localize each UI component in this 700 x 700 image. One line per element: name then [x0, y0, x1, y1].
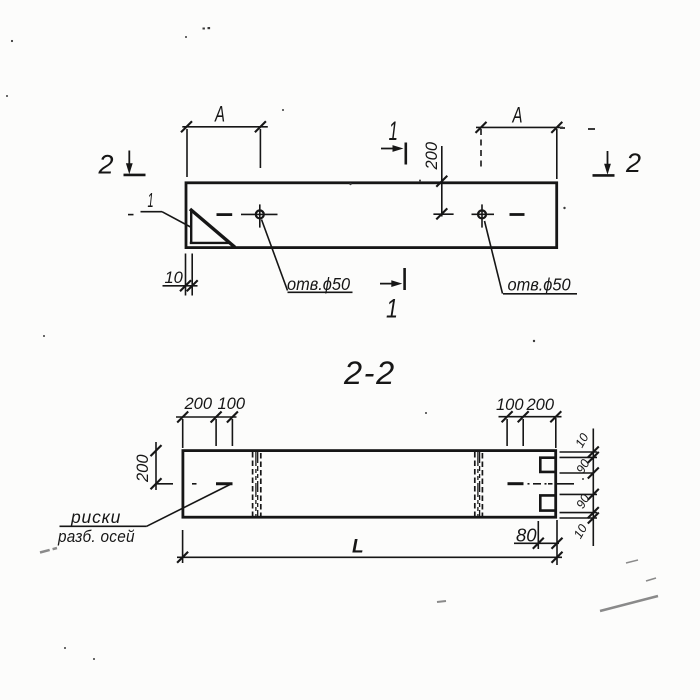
- svg-text:риски: риски: [70, 507, 121, 527]
- svg-text:10: 10: [571, 522, 590, 541]
- svg-text:100: 100: [496, 396, 524, 414]
- svg-text:1: 1: [386, 294, 398, 324]
- svg-text:2: 2: [625, 148, 641, 178]
- svg-text:200: 200: [526, 396, 555, 414]
- svg-text:1: 1: [148, 190, 154, 212]
- svg-text:200: 200: [134, 454, 152, 483]
- svg-text:отв.ϕ50: отв.ϕ50: [287, 273, 351, 294]
- svg-text:80: 80: [516, 525, 537, 546]
- svg-text:1: 1: [389, 116, 398, 146]
- svg-text:отв.ϕ50: отв.ϕ50: [508, 274, 572, 295]
- svg-text:A: A: [512, 103, 523, 128]
- svg-text:200: 200: [184, 395, 213, 413]
- svg-text:200: 200: [423, 141, 441, 170]
- svg-text:разб. осей: разб. осей: [57, 529, 135, 547]
- svg-text:10: 10: [572, 431, 591, 450]
- svg-text:A: A: [214, 102, 225, 127]
- svg-text:100: 100: [218, 395, 246, 413]
- svg-text:L: L: [352, 537, 364, 558]
- svg-text:2: 2: [98, 150, 114, 180]
- svg-text:10: 10: [165, 269, 184, 287]
- svg-text:2-2: 2-2: [343, 355, 396, 391]
